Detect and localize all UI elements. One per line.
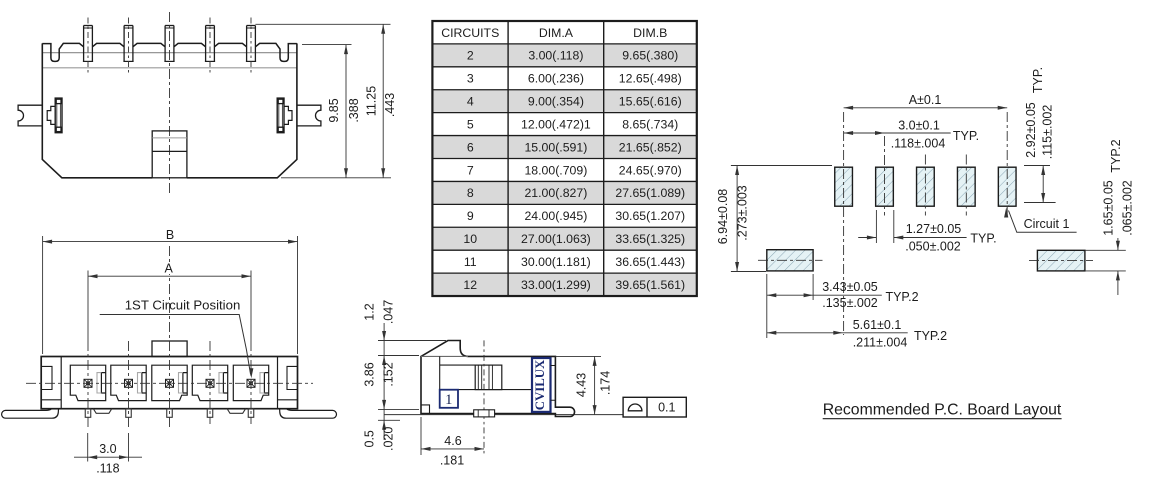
svg-text:5: 5 xyxy=(467,117,474,131)
svg-text:3.43±0.05: 3.43±0.05 xyxy=(822,280,878,294)
svg-text:33.65(1.325): 33.65(1.325) xyxy=(615,232,685,246)
svg-text:6: 6 xyxy=(467,140,474,154)
svg-text:.388: .388 xyxy=(347,98,361,122)
svg-text:.174: .174 xyxy=(599,371,613,395)
svg-text:3.0: 3.0 xyxy=(99,442,116,456)
svg-text:TYP.: TYP. xyxy=(970,231,996,245)
svg-text:CVILUX: CVILUX xyxy=(533,359,547,410)
svg-text:27.65(1.089): 27.65(1.089) xyxy=(615,186,685,200)
svg-text:.050±.002: .050±.002 xyxy=(905,240,961,254)
svg-text:18.00(.709): 18.00(.709) xyxy=(524,163,587,177)
svg-text:9.00(.354): 9.00(.354) xyxy=(528,95,584,109)
svg-text:10: 10 xyxy=(463,232,477,246)
svg-text:CIRCUITS: CIRCUITS xyxy=(441,26,499,40)
svg-text:3.00(.118): 3.00(.118) xyxy=(528,49,583,63)
svg-text:TYP.2: TYP.2 xyxy=(885,290,918,304)
svg-text:.443: .443 xyxy=(383,93,397,117)
svg-text:30.65(1.207): 30.65(1.207) xyxy=(615,209,685,223)
svg-text:4: 4 xyxy=(467,95,474,109)
svg-text:A: A xyxy=(165,262,174,276)
svg-text:0.5: 0.5 xyxy=(363,430,377,447)
svg-text:TYP.: TYP. xyxy=(953,129,979,143)
svg-text:21.65(.852): 21.65(.852) xyxy=(619,140,682,154)
svg-text:36.65(1.443): 36.65(1.443) xyxy=(615,255,685,269)
svg-text:1.27±0.05: 1.27±0.05 xyxy=(906,222,962,236)
svg-text:2.92±0.05: 2.92±0.05 xyxy=(1024,102,1038,158)
svg-text:27.00(1.063): 27.00(1.063) xyxy=(521,232,591,246)
svg-text:B: B xyxy=(166,228,174,242)
svg-text:0.1: 0.1 xyxy=(658,401,675,415)
svg-text:21.00(.827): 21.00(.827) xyxy=(524,186,587,200)
svg-text:1.65±0.05: 1.65±0.05 xyxy=(1102,180,1116,236)
svg-text:.065±.002: .065±.002 xyxy=(1121,180,1135,236)
svg-text:3: 3 xyxy=(467,72,474,86)
svg-text:3.86: 3.86 xyxy=(363,362,377,386)
svg-text:.047: .047 xyxy=(382,300,396,324)
svg-text:24.00(.945): 24.00(.945) xyxy=(524,209,587,223)
svg-text:11.25: 11.25 xyxy=(365,86,379,116)
svg-text:15.65(.616): 15.65(.616) xyxy=(619,95,682,109)
svg-text:DIM.B: DIM.B xyxy=(633,26,667,40)
svg-text:24.65(.970): 24.65(.970) xyxy=(619,163,682,177)
svg-text:Recommended P.C. Board Layout: Recommended P.C. Board Layout xyxy=(823,401,1062,418)
svg-text:12: 12 xyxy=(463,278,477,292)
svg-text:.273±.003: .273±.003 xyxy=(736,185,750,241)
svg-text:.152: .152 xyxy=(382,362,396,386)
svg-text:TYP.2: TYP.2 xyxy=(1109,139,1123,172)
svg-text:1.2: 1.2 xyxy=(363,303,377,320)
svg-text:30.00(1.181): 30.00(1.181) xyxy=(521,255,591,269)
svg-text:1ST Circuit Position: 1ST Circuit Position xyxy=(125,298,241,313)
svg-text:4.6: 4.6 xyxy=(444,434,461,448)
svg-text:.181: .181 xyxy=(440,453,464,467)
svg-text:A±0.1: A±0.1 xyxy=(909,93,942,107)
svg-text:39.65(1.561): 39.65(1.561) xyxy=(615,278,685,292)
svg-text:9.65(.380): 9.65(.380) xyxy=(622,49,678,63)
svg-text:7: 7 xyxy=(467,163,474,177)
svg-text:5.61±0.1: 5.61±0.1 xyxy=(853,318,902,332)
svg-text:9: 9 xyxy=(467,209,474,223)
svg-text:33.00(1.299): 33.00(1.299) xyxy=(521,278,591,292)
svg-text:4.43: 4.43 xyxy=(575,373,589,397)
svg-text:9.85: 9.85 xyxy=(327,98,341,122)
svg-text:Circuit 1: Circuit 1 xyxy=(1024,217,1070,231)
svg-text:3.0±0.1: 3.0±0.1 xyxy=(898,119,940,133)
svg-text:.020: .020 xyxy=(382,427,396,451)
svg-text:6.94±0.08: 6.94±0.08 xyxy=(716,189,730,245)
svg-text:8.65(.734): 8.65(.734) xyxy=(622,117,678,131)
svg-text:TYP.: TYP. xyxy=(1031,67,1045,93)
svg-text:6.00(.236): 6.00(.236) xyxy=(528,72,584,86)
svg-text:2: 2 xyxy=(467,49,474,63)
svg-text:8: 8 xyxy=(467,186,474,200)
svg-text:.115±.002: .115±.002 xyxy=(1041,105,1055,160)
svg-text:DIM.A: DIM.A xyxy=(539,26,574,40)
svg-text:.211±.004: .211±.004 xyxy=(853,335,908,349)
svg-text:.118: .118 xyxy=(96,462,119,476)
svg-text:TYP.2: TYP.2 xyxy=(914,329,947,343)
svg-text:15.00(.591): 15.00(.591) xyxy=(524,140,587,154)
svg-text:12.00(.472)1: 12.00(.472)1 xyxy=(521,117,591,131)
svg-text:11: 11 xyxy=(464,255,477,269)
svg-text:1: 1 xyxy=(445,392,452,408)
svg-text:.135±.002: .135±.002 xyxy=(822,296,878,310)
svg-text:12.65(.498): 12.65(.498) xyxy=(619,72,682,86)
svg-text:.118±.004: .118±.004 xyxy=(891,137,946,151)
